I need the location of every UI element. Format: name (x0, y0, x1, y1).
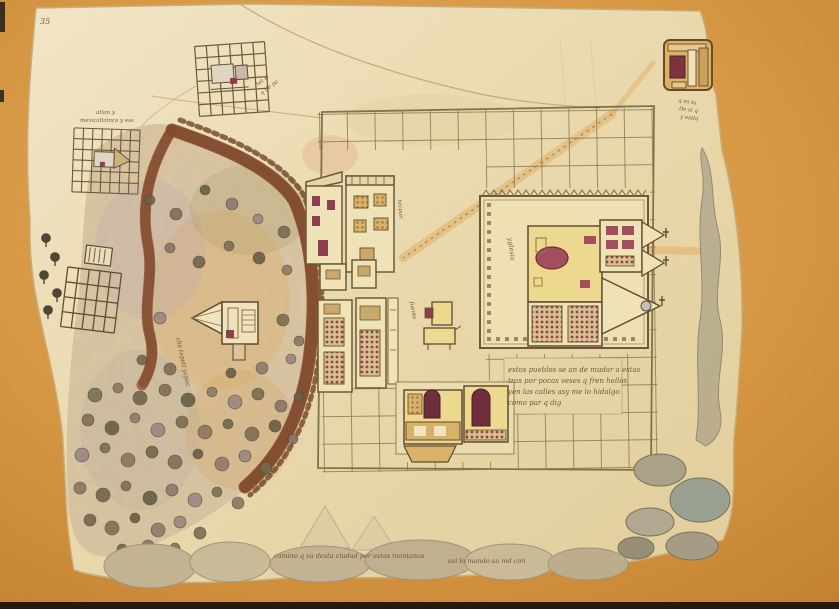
bush-icon (198, 425, 212, 439)
tree-icon (44, 306, 53, 315)
bush-icon (154, 312, 166, 324)
bush-icon (137, 355, 147, 365)
arched-doorway (424, 390, 440, 418)
building-northeast (664, 40, 712, 90)
bush-icon (253, 252, 265, 264)
bush-icon (164, 363, 176, 375)
bush-icon (245, 427, 259, 441)
building (318, 300, 352, 392)
bush-icon (166, 484, 178, 496)
bush-icon (223, 419, 233, 429)
bush-icon (75, 448, 89, 462)
field-plot-building (84, 245, 112, 266)
battlement-dot (487, 329, 491, 333)
battlement-dot (487, 320, 491, 324)
battlement-dot (631, 337, 635, 341)
battlement-dot (487, 266, 491, 270)
battlement-dot (487, 248, 491, 252)
bush-icon (168, 455, 182, 469)
bush-icon (188, 493, 202, 507)
bush-icon (215, 457, 229, 471)
battlement-dot (604, 337, 608, 341)
bush-icon (151, 523, 165, 537)
edge-mark (0, 2, 5, 32)
buildings-south (396, 382, 514, 462)
note-line: yen las calles asy me lo hidalgo (507, 388, 620, 396)
bottom-caption: camino q va desta ciudad por estas monta… (274, 552, 425, 560)
bush-icon (130, 413, 140, 423)
building (356, 298, 398, 388)
bush-icon (278, 226, 290, 238)
battlement-dot (487, 337, 491, 341)
tree-icon (51, 253, 60, 262)
map-canvas: 35 tet si q tle pa atlan y mexicaltzinco… (0, 0, 839, 609)
edge-mark (0, 90, 4, 102)
bell-icon (641, 301, 651, 311)
arched-doorway (472, 389, 490, 426)
bush-icon (82, 414, 94, 426)
chapel-door (226, 330, 234, 338)
bush-icon (193, 449, 203, 459)
battlement-dot (487, 293, 491, 297)
bush-icon (96, 488, 110, 502)
bush-icon (121, 453, 135, 467)
note-line: como par q dig (508, 399, 562, 407)
west-town-label: atlan y (96, 110, 116, 116)
bush-icon (143, 491, 157, 505)
west-town-label: mexicaltzinco y ess (80, 118, 134, 124)
bush-icon (159, 384, 171, 396)
building (464, 386, 508, 442)
bush-icon (105, 421, 119, 435)
historical-map-photo: 35 tet si q tle pa atlan y mexicaltzinco… (0, 0, 839, 609)
building (404, 390, 462, 462)
bush-icon (260, 462, 272, 474)
bush-icon (121, 481, 131, 491)
bush-icon (282, 265, 292, 275)
battlement-dot (613, 337, 617, 341)
bush-icon (226, 368, 236, 378)
bush-icon (74, 482, 86, 494)
bush-icon (105, 521, 119, 535)
bush-icon (275, 400, 287, 412)
battlement-dot (514, 337, 518, 341)
battlement-dot (622, 337, 626, 341)
bush-icon (193, 256, 205, 268)
battlement-dot (496, 337, 500, 341)
bush-icon (226, 198, 238, 210)
bush-icon (130, 513, 140, 523)
tree-icon (42, 234, 51, 243)
bush-icon (181, 393, 195, 407)
bush-icon (151, 423, 165, 437)
battlement-dot (487, 311, 491, 315)
battlement-dot (487, 221, 491, 225)
church-nave (528, 226, 602, 302)
tree-icon (40, 271, 49, 280)
bush-icon (256, 362, 268, 374)
bush-icon (212, 487, 222, 497)
bush-icon (224, 241, 234, 251)
battlement-dot (487, 212, 491, 216)
church-complex (480, 190, 669, 348)
bush-icon (294, 336, 304, 346)
doorway (670, 56, 685, 78)
bush-icon (165, 243, 175, 253)
bush-icon (252, 388, 264, 400)
bush-icon (269, 420, 281, 432)
bottom-caption: asi lo mando su md con (448, 557, 526, 565)
bush-icon (174, 516, 186, 528)
note-line: estos pueblos se an de mudar a estas (508, 366, 641, 374)
bush-icon (113, 383, 123, 393)
bush-icon (84, 514, 96, 526)
bush-icon (194, 527, 206, 539)
bush-icon (294, 392, 304, 402)
tree-icon (53, 289, 62, 298)
corner-mark: 35 (40, 17, 50, 26)
bush-icon (239, 450, 251, 462)
bush-icon (145, 195, 155, 205)
bush-icon (207, 387, 217, 397)
bush-icon (170, 208, 182, 220)
bush-icon (286, 354, 296, 364)
bush-icon (133, 391, 147, 405)
bush-icon (146, 446, 158, 458)
battlement-dot (487, 203, 491, 207)
battlement-dot (487, 275, 491, 279)
bush-icon (253, 214, 263, 224)
trough (404, 446, 456, 462)
battlement-dot (505, 337, 509, 341)
battlement-dot (523, 337, 527, 341)
battlement-dot (487, 257, 491, 261)
battlement-dot (487, 302, 491, 306)
battlement-dot (487, 230, 491, 234)
note-line: tras por pocas veses q fren hellos (508, 377, 628, 385)
battlement-dot (487, 284, 491, 288)
church-cloister (528, 302, 602, 346)
building (306, 172, 342, 264)
bush-icon (228, 395, 242, 409)
bush-icon (232, 497, 244, 509)
bush-icon (88, 388, 102, 402)
bush-icon (277, 314, 289, 326)
bush-icon (100, 443, 110, 453)
photo-edge-bar (0, 602, 839, 609)
bush-icon (288, 434, 298, 444)
building (346, 176, 394, 272)
battlement-dot (487, 239, 491, 243)
bush-icon (176, 416, 188, 428)
bush-icon (200, 185, 210, 195)
